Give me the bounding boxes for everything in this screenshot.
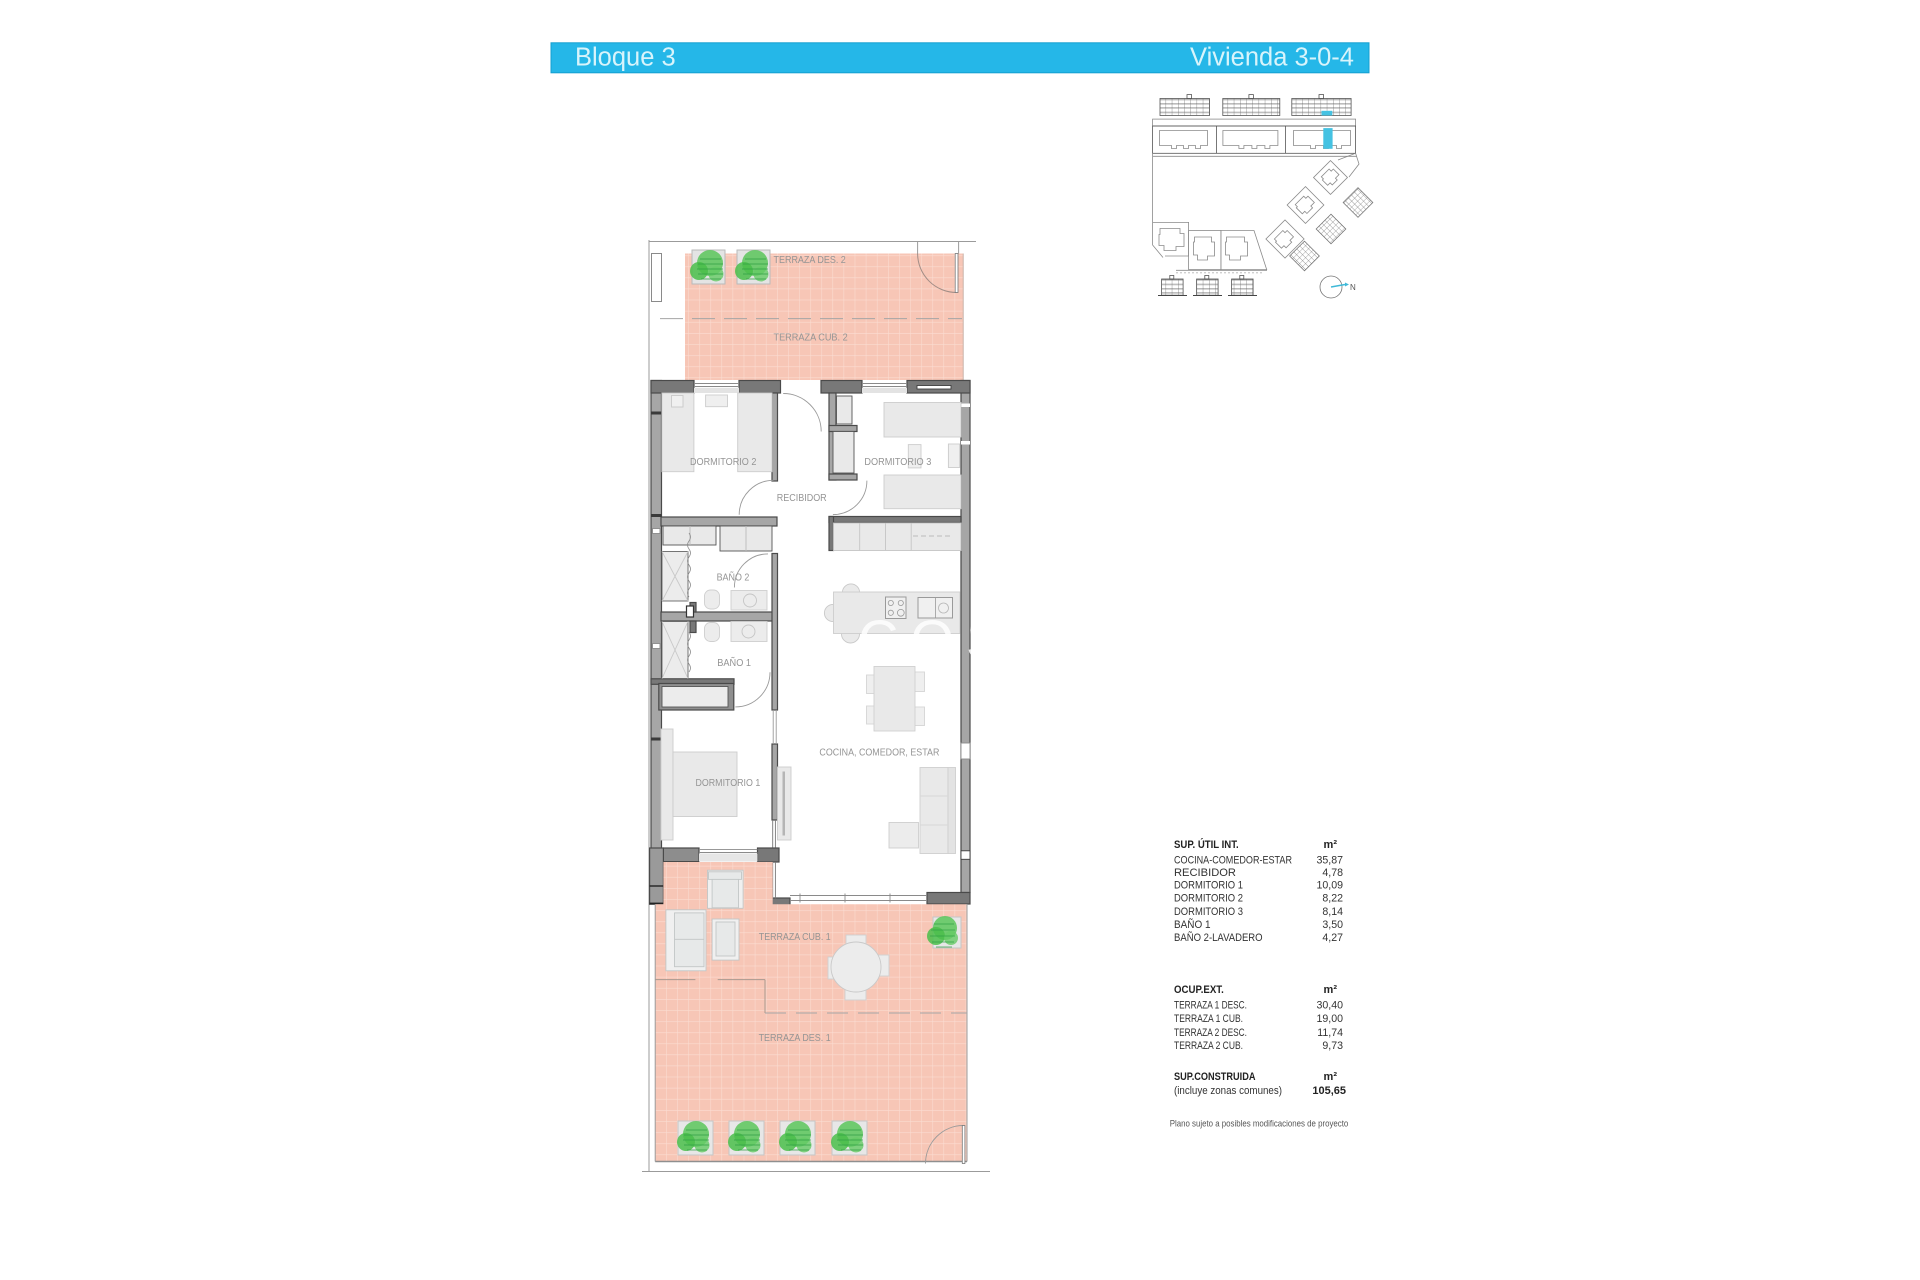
svg-text:4,78: 4,78: [1322, 867, 1343, 879]
svg-text:TERRAZA CUB. 1: TERRAZA CUB. 1: [759, 931, 831, 943]
svg-text:10,09: 10,09: [1316, 880, 1343, 892]
svg-text:TERRAZA 1 DESC.: TERRAZA 1 DESC.: [1174, 999, 1247, 1011]
svg-text:DORMITORIO 1: DORMITORIO 1: [696, 777, 761, 789]
svg-text:m²: m²: [1324, 1071, 1338, 1083]
svg-text:BAÑO 2-LAVADERO: BAÑO 2-LAVADERO: [1174, 931, 1263, 944]
svg-text:30,40: 30,40: [1316, 999, 1343, 1011]
svg-text:9,73: 9,73: [1322, 1040, 1343, 1052]
svg-text:COCINA, COMEDOR, ESTAR: COCINA, COMEDOR, ESTAR: [819, 747, 939, 759]
svg-text:COCINA-COMEDOR-ESTAR: COCINA-COMEDOR-ESTAR: [1174, 855, 1292, 867]
svg-text:m²: m²: [1324, 984, 1338, 996]
svg-text:3,50: 3,50: [1322, 919, 1343, 931]
svg-text:Vivienda 3-0-4: Vivienda 3-0-4: [1190, 44, 1354, 72]
svg-text:TERRAZA DES. 1: TERRAZA DES. 1: [759, 1032, 831, 1044]
svg-text:(incluye zonas comunes): (incluye zonas comunes): [1174, 1085, 1282, 1097]
svg-text:BAÑO 1: BAÑO 1: [1174, 918, 1211, 931]
svg-text:4,27: 4,27: [1322, 932, 1343, 944]
svg-text:OCUP.EXT.: OCUP.EXT.: [1174, 984, 1224, 996]
svg-text:Plano sujeto a posibles modifi: Plano sujeto a posibles modificaciones d…: [1170, 1119, 1349, 1129]
svg-text:SUP.CONSTRUIDA: SUP.CONSTRUIDA: [1174, 1071, 1256, 1083]
svg-text:DORMITORIO 2: DORMITORIO 2: [690, 456, 757, 468]
svg-text:TERRAZA DES. 2: TERRAZA DES. 2: [774, 254, 846, 266]
svg-text:TERRAZA CUB. 2: TERRAZA CUB. 2: [774, 332, 848, 344]
svg-text:RECIBIDOR: RECIBIDOR: [777, 492, 827, 504]
svg-text:COS: COS: [858, 608, 1015, 671]
svg-text:35,87: 35,87: [1316, 855, 1343, 867]
svg-text:SUP. ÚTIL INT.: SUP. ÚTIL INT.: [1174, 838, 1239, 851]
svg-text:TERRAZA 2 CUB.: TERRAZA 2 CUB.: [1174, 1040, 1243, 1052]
svg-text:8,14: 8,14: [1322, 906, 1343, 918]
svg-text:TERRAZA 1 CUB.: TERRAZA 1 CUB.: [1174, 1013, 1243, 1025]
svg-text:BAÑO 2: BAÑO 2: [717, 571, 750, 584]
svg-text:N: N: [1350, 283, 1356, 292]
svg-text:RECIBIDOR: RECIBIDOR: [1174, 867, 1236, 879]
svg-text:105,65: 105,65: [1312, 1085, 1346, 1097]
svg-text:m²: m²: [1324, 839, 1338, 851]
svg-text:19,00: 19,00: [1316, 1013, 1343, 1025]
svg-text:11,74: 11,74: [1317, 1027, 1343, 1039]
svg-text:DORMITORIO 2: DORMITORIO 2: [1174, 892, 1243, 904]
svg-text:Bloque 3: Bloque 3: [575, 44, 676, 72]
svg-text:DORMITORIO 3: DORMITORIO 3: [1174, 906, 1243, 918]
svg-text:TERRAZA 2 DESC.: TERRAZA 2 DESC.: [1174, 1027, 1247, 1039]
svg-text:BAÑO 1: BAÑO 1: [717, 656, 751, 669]
svg-text:8,22: 8,22: [1322, 892, 1343, 904]
svg-text:DORMITORIO 1: DORMITORIO 1: [1174, 880, 1243, 892]
svg-text:DORMITORIO 3: DORMITORIO 3: [864, 456, 931, 468]
